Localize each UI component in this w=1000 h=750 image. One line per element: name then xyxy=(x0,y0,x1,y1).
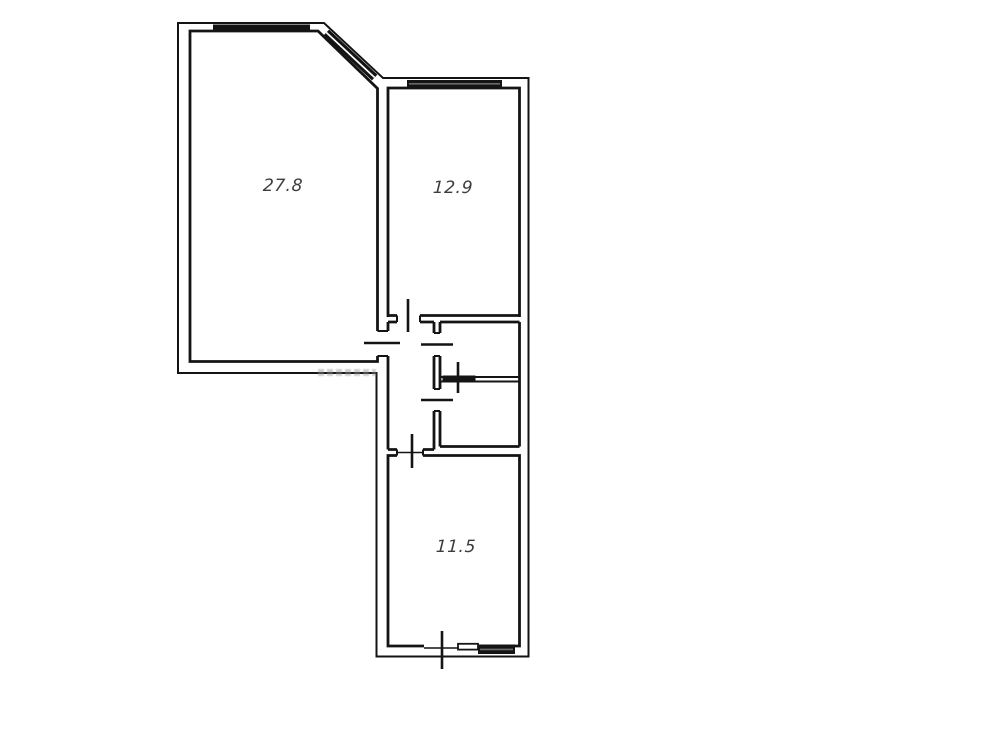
window-room-27 xyxy=(213,25,310,32)
room-area-label-27-8: 27.8 xyxy=(240,176,325,196)
floorplan-drawing xyxy=(0,0,1000,750)
window-room-11 xyxy=(478,645,515,655)
watermark-smudge xyxy=(318,369,376,376)
outer-wall-outline xyxy=(178,23,529,657)
room-area-label-11-5: 11.5 xyxy=(413,537,498,557)
room-area-label-12-9: 12.9 xyxy=(410,178,495,198)
balcony-door-stub xyxy=(458,644,478,650)
room-12-walls xyxy=(388,88,520,317)
window-diagonal xyxy=(324,30,378,81)
floorplan-canvas: 27.8 12.9 11.5 xyxy=(0,0,1000,750)
window-room-12 xyxy=(407,80,502,87)
room-27-walls xyxy=(190,31,378,362)
